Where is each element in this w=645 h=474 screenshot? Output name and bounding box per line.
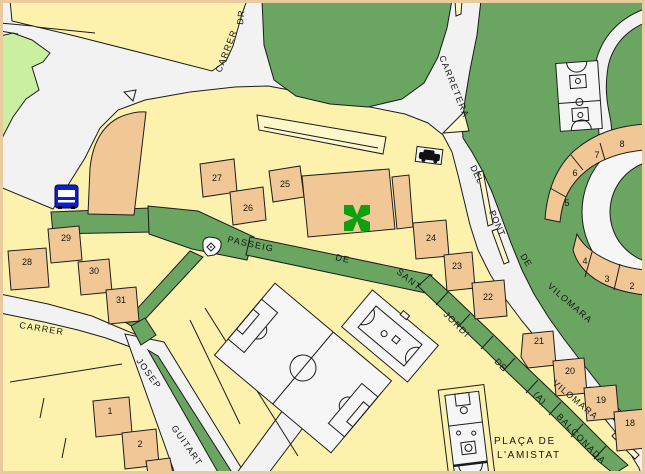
building-number: 8	[619, 139, 624, 149]
building-number: 27	[212, 173, 222, 183]
building-number: 19	[596, 395, 606, 405]
building-number: 18	[625, 418, 635, 428]
building-number: 30	[89, 266, 99, 276]
bus-stop-icon[interactable]	[55, 185, 78, 209]
pharmacy-cross-icon[interactable]	[344, 205, 370, 231]
building-number: 25	[280, 179, 290, 189]
building-18	[614, 409, 645, 451]
building-number: 5	[564, 198, 569, 208]
building-28	[8, 248, 49, 290]
map-canvas[interactable]: 27 26 25 24 23 22 29 28 30 31 1 2 21 20 …	[0, 0, 645, 474]
building-number: 26	[243, 203, 253, 213]
street-label-carrer-dr-abbr: DR.	[235, 5, 247, 25]
building-number: 29	[61, 233, 71, 243]
traffic-island-top	[455, 1, 462, 16]
basketball-court-north	[556, 61, 603, 132]
place-label-placa-line1: PLAÇA DE	[494, 436, 556, 447]
building-number: 2	[629, 281, 634, 291]
building-number: 3	[604, 274, 609, 284]
place-label-placa-line2: L'AMISTAT	[497, 450, 561, 461]
building-31	[106, 287, 139, 324]
building-number: 31	[116, 295, 126, 305]
car-icon[interactable]	[415, 146, 443, 164]
building-number: 7	[594, 150, 599, 160]
building-23	[444, 252, 475, 291]
building-29	[48, 226, 82, 263]
building-number: 2	[137, 439, 142, 449]
building-number: 21	[534, 336, 544, 346]
building-number: 28	[22, 257, 32, 267]
building-number: 4	[582, 256, 587, 266]
building-number: 20	[565, 366, 575, 376]
building-number: 23	[452, 261, 462, 271]
street-map[interactable]: 27 26 25 24 23 22 29 28 30 31 1 2 21 20 …	[0, 0, 645, 474]
building-number: 1	[107, 406, 112, 416]
building-number: 22	[483, 292, 493, 302]
building-1	[93, 397, 132, 437]
building-number: 6	[572, 168, 577, 178]
building-number: 24	[426, 233, 436, 243]
